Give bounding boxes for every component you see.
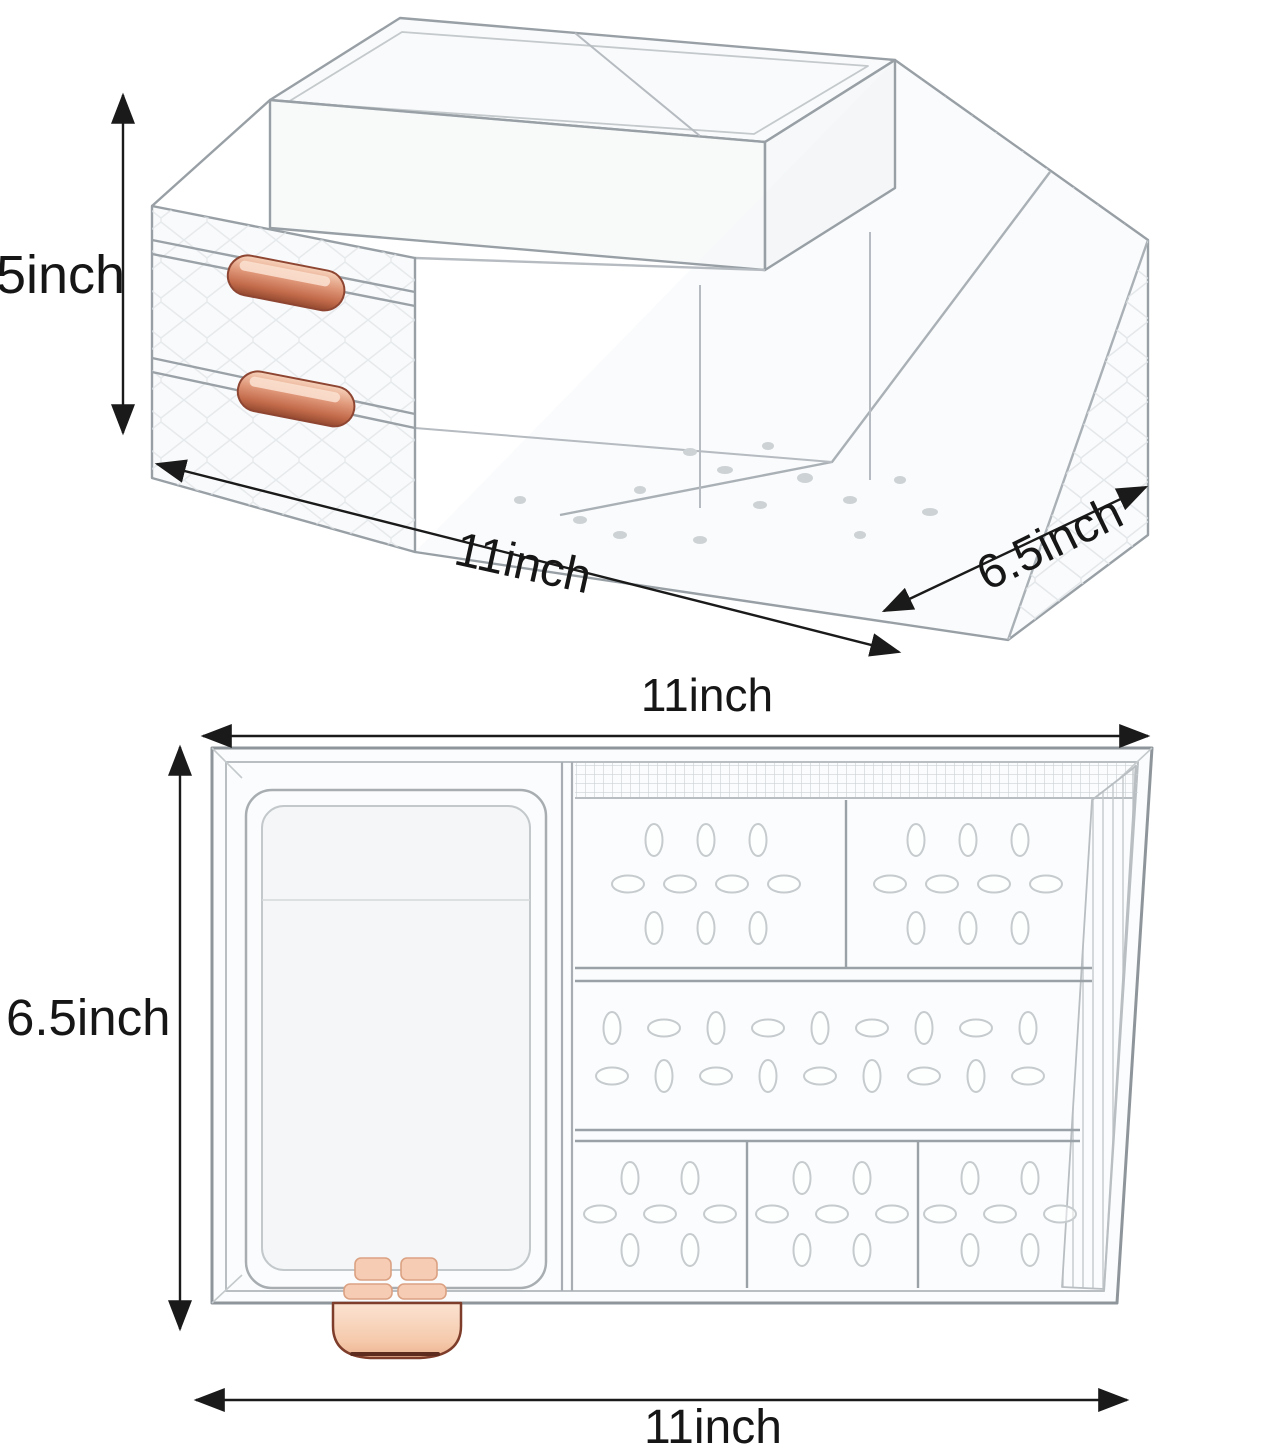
figure-canvas bbox=[0, 0, 1270, 1456]
v1-height-label: 5inch bbox=[0, 248, 125, 302]
v2-depth-label: 6.5inch bbox=[6, 992, 170, 1043]
product-dimensions-figure: 5inch 11inch 6.5inch 11inch 6.5inch 11in… bbox=[0, 0, 1270, 1456]
top-down-view-sketch bbox=[212, 748, 1152, 1358]
v2-bottom-width-label: 11inch bbox=[588, 1404, 838, 1452]
v2-top-width-label: 11inch bbox=[582, 672, 832, 718]
